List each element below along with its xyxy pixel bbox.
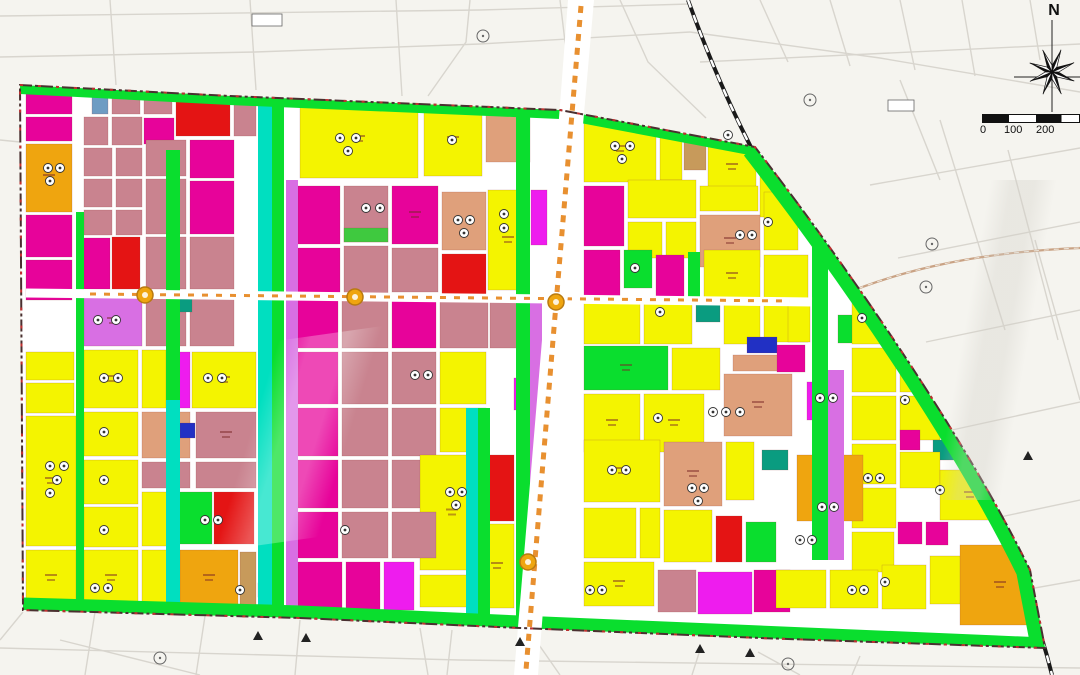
parcel-Y bbox=[640, 508, 660, 558]
parcel-M bbox=[190, 181, 234, 234]
facility-icon-glyph bbox=[832, 397, 835, 400]
parcel-R bbox=[658, 570, 696, 612]
parcel-Y bbox=[142, 350, 166, 408]
facility-icon-glyph bbox=[355, 137, 358, 140]
parcel-label bbox=[728, 277, 736, 279]
parcel-Y bbox=[84, 350, 138, 408]
parcel-Y bbox=[726, 442, 754, 500]
corridor-strip-BG bbox=[688, 252, 700, 302]
parcel-Y bbox=[672, 348, 720, 390]
parcel-label bbox=[724, 237, 736, 239]
facility-icon-glyph bbox=[884, 581, 887, 584]
circled-road-mark-dot bbox=[482, 35, 484, 37]
parcel-label bbox=[670, 424, 678, 426]
parcel-label bbox=[726, 272, 738, 274]
parcel-Y bbox=[584, 302, 640, 344]
facility-icon-glyph bbox=[221, 377, 224, 380]
facility-icon-glyph bbox=[625, 469, 628, 472]
parcel-label bbox=[448, 514, 456, 516]
facility-icon-glyph bbox=[614, 145, 617, 148]
parcel-Y bbox=[764, 255, 808, 303]
scale-tick-100: 100 bbox=[1004, 124, 1022, 136]
parcel-M bbox=[392, 186, 438, 244]
parcel-R bbox=[342, 460, 388, 508]
parcel-Y bbox=[26, 416, 76, 546]
facility-icon-glyph bbox=[344, 529, 347, 532]
parcel-TN bbox=[240, 552, 256, 606]
parcel-label bbox=[608, 424, 616, 426]
parcel-Y bbox=[700, 186, 758, 211]
parcel-label bbox=[504, 241, 512, 243]
facility-icon-glyph bbox=[414, 374, 417, 377]
parcel-R bbox=[112, 117, 142, 145]
facility-icon-glyph bbox=[833, 506, 836, 509]
parcel-label bbox=[994, 581, 1006, 583]
parcel-label bbox=[411, 216, 419, 218]
facility-icon-glyph bbox=[49, 465, 52, 468]
facility-icon-glyph bbox=[365, 207, 368, 210]
facility-icon-glyph bbox=[47, 167, 50, 170]
facility-icon-glyph bbox=[861, 317, 864, 320]
facility-icon-glyph bbox=[457, 219, 460, 222]
facility-icon-glyph bbox=[217, 519, 220, 522]
facility-icon-glyph bbox=[739, 234, 742, 237]
parcel-R bbox=[116, 148, 142, 176]
parcel-Y bbox=[584, 508, 636, 558]
parcel-M bbox=[298, 248, 340, 294]
parcel-label bbox=[45, 574, 57, 576]
facility-icon-glyph bbox=[879, 477, 882, 480]
parcel-R bbox=[196, 462, 256, 488]
parcel-R bbox=[84, 117, 108, 145]
parcel-F bbox=[698, 572, 752, 614]
parcel-BG bbox=[746, 522, 776, 562]
parcel-S bbox=[664, 442, 722, 506]
parcel-M bbox=[26, 117, 72, 141]
facility-icon-glyph bbox=[712, 411, 715, 414]
facility-icon-glyph bbox=[49, 492, 52, 495]
facility-icon-glyph bbox=[451, 139, 454, 142]
parcel-M bbox=[298, 408, 338, 456]
junction-symbol-core bbox=[352, 294, 358, 300]
parcel-M bbox=[898, 522, 922, 544]
facility-icon-glyph bbox=[94, 587, 97, 590]
facility-icon-glyph bbox=[449, 491, 452, 494]
parcel-Y bbox=[882, 565, 926, 609]
facility-icon-glyph bbox=[851, 589, 854, 592]
parcel-label bbox=[606, 419, 618, 421]
parcel-label bbox=[754, 406, 762, 408]
corridor-strip-C bbox=[466, 408, 478, 623]
facility-icon-glyph bbox=[904, 399, 907, 402]
facility-icon-glyph bbox=[659, 311, 662, 314]
parcel-M bbox=[298, 460, 338, 508]
parcel-R bbox=[116, 179, 142, 207]
facility-icon-glyph bbox=[239, 589, 242, 592]
facility-icon-glyph bbox=[463, 232, 466, 235]
parcel-O bbox=[180, 550, 238, 606]
corridor-strip-V bbox=[286, 180, 298, 610]
parcel-R bbox=[342, 352, 388, 404]
scale-tick-0: 0 bbox=[980, 124, 986, 136]
parcel-M bbox=[346, 562, 380, 610]
parcel-TG bbox=[762, 450, 788, 470]
corridor-strip-BG bbox=[166, 150, 180, 400]
parcel-RD bbox=[442, 254, 486, 294]
facility-icon-glyph bbox=[97, 319, 100, 322]
facility-icon-glyph bbox=[347, 150, 350, 153]
facility-icon-glyph bbox=[634, 267, 637, 270]
parcel-Y bbox=[84, 507, 138, 547]
parcel-Y bbox=[704, 250, 760, 302]
parcel-label bbox=[203, 574, 215, 576]
parcel-label bbox=[409, 211, 421, 213]
circled-road-mark-dot bbox=[787, 663, 789, 665]
facility-icon-glyph bbox=[56, 479, 59, 482]
facility-icon-glyph bbox=[469, 219, 472, 222]
parcel-label bbox=[752, 401, 764, 403]
facility-icon-glyph bbox=[751, 234, 754, 237]
corridor-strip-BG bbox=[272, 96, 284, 610]
parcel-Y bbox=[26, 550, 76, 606]
parcel-label bbox=[966, 496, 974, 498]
parcel-G bbox=[344, 228, 388, 242]
parcel-label bbox=[689, 475, 697, 477]
parcel-R bbox=[344, 246, 388, 294]
compass-north-label: N bbox=[1042, 2, 1066, 20]
facility-icon-glyph bbox=[589, 589, 592, 592]
parcel-label bbox=[728, 168, 736, 170]
parcel-F bbox=[384, 562, 414, 610]
parcel-label bbox=[47, 579, 55, 581]
facility-icon-glyph bbox=[867, 477, 870, 480]
parcel-Y bbox=[584, 562, 654, 606]
facility-icon-glyph bbox=[379, 207, 382, 210]
scale-bar: 0 100 200 bbox=[982, 114, 1080, 137]
parcel-R bbox=[342, 408, 388, 456]
parcel-label bbox=[615, 585, 623, 587]
facility-icon-glyph bbox=[103, 377, 106, 380]
facility-icon-glyph bbox=[204, 519, 207, 522]
parcel-label bbox=[502, 236, 514, 238]
road-label-box bbox=[888, 100, 914, 111]
parcel-label bbox=[107, 579, 115, 581]
facility-icon-glyph bbox=[657, 417, 660, 420]
facility-icon-glyph bbox=[939, 489, 942, 492]
parcel-label bbox=[622, 369, 630, 371]
circled-road-mark-dot bbox=[931, 243, 933, 245]
parcel-M bbox=[84, 238, 110, 289]
parcel-Y bbox=[900, 452, 940, 488]
corridor-strip-BG bbox=[478, 408, 490, 620]
parcel-M bbox=[656, 255, 684, 300]
parcel-R bbox=[190, 237, 234, 289]
parcel-R bbox=[84, 179, 112, 207]
facility-icon-glyph bbox=[819, 397, 822, 400]
facility-icon-glyph bbox=[601, 589, 604, 592]
parcel-R bbox=[392, 512, 436, 558]
parcel-RD bbox=[488, 455, 514, 521]
junction-symbol-core bbox=[142, 292, 148, 298]
facility-icon-glyph bbox=[115, 319, 118, 322]
facility-icon-glyph bbox=[739, 411, 742, 414]
corridor-strip-C bbox=[258, 96, 272, 610]
parcel-label bbox=[726, 242, 734, 244]
facility-icon-glyph bbox=[59, 167, 62, 170]
parcel-label bbox=[205, 579, 213, 581]
parcel-Y bbox=[142, 492, 168, 546]
parcel-label bbox=[220, 431, 232, 433]
parcel-R bbox=[84, 210, 112, 235]
parcel-BG bbox=[584, 346, 668, 390]
parcel-BL bbox=[180, 423, 195, 438]
parcel-R bbox=[196, 412, 256, 458]
parcel-M bbox=[190, 140, 234, 178]
parcel-Y bbox=[440, 352, 486, 404]
parcel-Y bbox=[628, 180, 696, 218]
parcel-Y bbox=[84, 412, 138, 456]
facility-icon-glyph bbox=[427, 374, 430, 377]
map-canvas bbox=[0, 0, 1080, 675]
facility-icon-glyph bbox=[697, 500, 700, 503]
planning-map-screenshot: N 0 100 200 bbox=[0, 0, 1080, 675]
parcel-M bbox=[26, 215, 72, 257]
parcel-Y bbox=[852, 396, 896, 440]
parcel-S bbox=[724, 374, 792, 436]
parcel-Y bbox=[84, 550, 138, 606]
facility-icon-glyph bbox=[503, 213, 506, 216]
facility-icon-glyph bbox=[207, 377, 210, 380]
facility-icon-glyph bbox=[767, 221, 770, 224]
facility-icon-glyph bbox=[103, 431, 106, 434]
facility-icon-glyph bbox=[629, 145, 632, 148]
parcel-label bbox=[726, 163, 738, 165]
parcel-M bbox=[584, 186, 624, 246]
parcel-M bbox=[777, 345, 805, 372]
facility-icon-glyph bbox=[339, 137, 342, 140]
parcel-label bbox=[222, 436, 230, 438]
parcel-M bbox=[298, 186, 340, 244]
facility-icon-glyph bbox=[799, 539, 802, 542]
facility-icon-glyph bbox=[107, 587, 110, 590]
parcel-Y bbox=[84, 460, 138, 504]
junction-symbol-core bbox=[525, 559, 531, 565]
parcel-R bbox=[392, 248, 438, 292]
parcel-label bbox=[668, 419, 680, 421]
parcel-label bbox=[613, 580, 625, 582]
parcel-RD bbox=[716, 516, 742, 562]
parcel-R bbox=[190, 292, 234, 346]
facility-icon-glyph bbox=[727, 134, 730, 137]
parcel-Y bbox=[930, 556, 964, 604]
parcel-Y bbox=[776, 570, 826, 608]
corridor-strip-C bbox=[166, 400, 180, 608]
parcel-Y bbox=[664, 510, 712, 562]
facility-icon-glyph bbox=[621, 158, 624, 161]
facility-icon-glyph bbox=[63, 465, 66, 468]
parcel-M bbox=[584, 250, 620, 300]
parcel-S bbox=[442, 192, 486, 250]
parcel-M bbox=[298, 512, 338, 558]
scale-bar-ticks: 0 100 200 bbox=[982, 123, 1080, 137]
facility-icon-glyph bbox=[117, 377, 120, 380]
parcel-label bbox=[620, 364, 632, 366]
parcel-M bbox=[926, 522, 948, 545]
facility-icon-glyph bbox=[103, 529, 106, 532]
facility-icon-glyph bbox=[611, 469, 614, 472]
parcel-label bbox=[105, 574, 117, 576]
facility-icon-glyph bbox=[811, 539, 814, 542]
circled-road-mark-dot bbox=[925, 286, 927, 288]
parcel-M bbox=[900, 430, 920, 450]
parcel-label bbox=[491, 562, 503, 564]
parcel-M bbox=[298, 300, 338, 348]
parcel-R bbox=[440, 300, 488, 348]
facility-icon-glyph bbox=[691, 487, 694, 490]
circled-road-mark-dot bbox=[159, 657, 161, 659]
parcel-R bbox=[116, 210, 142, 235]
parcel-label bbox=[996, 586, 1004, 588]
parcel-label bbox=[43, 174, 55, 176]
facility-icon-glyph bbox=[821, 506, 824, 509]
parcel-Y bbox=[644, 302, 692, 344]
facility-icon-glyph bbox=[725, 411, 728, 414]
facility-icon-glyph bbox=[863, 589, 866, 592]
parcel-F bbox=[531, 190, 547, 245]
facility-icon-glyph bbox=[455, 504, 458, 507]
facility-icon-glyph bbox=[703, 487, 706, 490]
junction-symbol-core bbox=[553, 299, 559, 305]
parcel-BL bbox=[747, 337, 777, 353]
scale-tick-200: 200 bbox=[1036, 124, 1054, 136]
scale-bar-segments bbox=[982, 114, 1080, 123]
parcel-M bbox=[392, 300, 436, 348]
parcel-Y bbox=[26, 383, 74, 413]
parcel-RD bbox=[112, 237, 140, 289]
parcel-label bbox=[687, 470, 699, 472]
road-label-box bbox=[252, 14, 282, 26]
facility-icon-glyph bbox=[49, 180, 52, 183]
circled-road-mark-dot bbox=[809, 99, 811, 101]
parcel-R bbox=[342, 512, 388, 558]
parcel-Y bbox=[26, 352, 74, 380]
parcel-label bbox=[493, 567, 501, 569]
corridor-strip-BG bbox=[76, 212, 84, 608]
facility-icon-glyph bbox=[461, 491, 464, 494]
parcel-R bbox=[342, 300, 388, 348]
facility-icon-glyph bbox=[503, 227, 506, 230]
facility-icon-glyph bbox=[103, 479, 106, 482]
parcel-M bbox=[298, 352, 338, 404]
parcel-R bbox=[392, 408, 436, 456]
parcel-R bbox=[84, 148, 112, 176]
parcel-M bbox=[298, 562, 342, 610]
